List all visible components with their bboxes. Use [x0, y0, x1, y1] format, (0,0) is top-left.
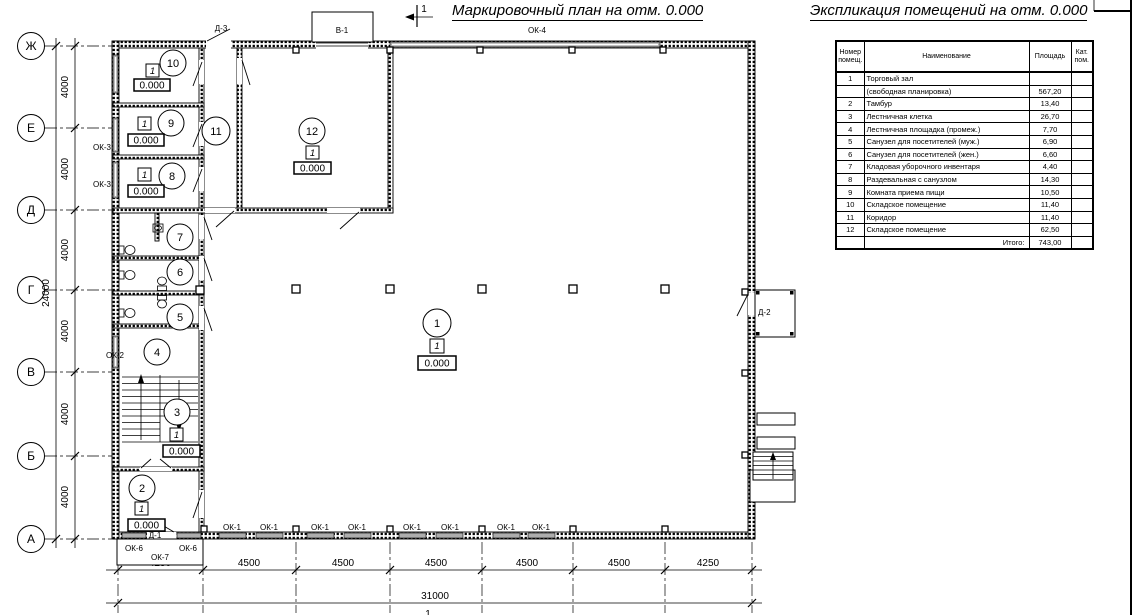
table-row: 10Складское помещение11,40: [836, 198, 1093, 211]
cell-area: 11,40: [1029, 211, 1071, 224]
svg-text:0.000: 0.000: [134, 521, 159, 532]
window-tag: ОК-1: [497, 523, 516, 532]
table-row: 8Раздевальная с санузлом14,30: [836, 173, 1093, 186]
table-row: 9Комната приема пищи10,50: [836, 186, 1093, 199]
cell-room-number: 12: [836, 224, 864, 237]
section-mark: 1: [405, 4, 433, 27]
cell-area: 14,30: [1029, 173, 1071, 186]
table-title: Экспликация помещений на отм. 0.000: [810, 2, 1087, 21]
cell-name: Складское помещение: [864, 198, 1029, 211]
room-marker-12: 12 1 0.000: [294, 118, 331, 175]
room-marker-2: 2 1 0.000: [128, 475, 165, 532]
cell-area: 11,40: [1029, 198, 1071, 211]
svg-text:10: 10: [167, 58, 179, 70]
plan-title: Маркировочный план на отм. 0.000: [452, 2, 703, 21]
cell-category: [1071, 161, 1093, 174]
header-name: Наименование: [864, 41, 1029, 72]
cell-category: [1071, 85, 1093, 98]
window-tag: ОК-1: [441, 523, 460, 532]
cell-name: Лестничная клетка: [864, 110, 1029, 123]
dim-value: 4000: [60, 157, 71, 180]
dim-total: 31000: [421, 591, 449, 602]
cell-room-number: 9: [836, 186, 864, 199]
axis-label: В: [27, 365, 35, 379]
svg-text:4: 4: [154, 347, 160, 359]
dim-value: 4000: [60, 238, 71, 261]
svg-text:1: 1: [150, 66, 155, 77]
cell-name: Комната приема пищи: [864, 186, 1029, 199]
svg-text:0.000: 0.000: [169, 447, 194, 458]
cell-category: [1071, 123, 1093, 136]
svg-text:0.000: 0.000: [300, 164, 325, 175]
dim-value: 4500: [332, 558, 355, 569]
cell-room-number: 6: [836, 148, 864, 161]
dim-value: 4000: [60, 75, 71, 98]
table-total-row: Итого:743,00: [836, 236, 1093, 249]
table-row: 3Лестничная клетка26,70: [836, 110, 1093, 123]
cell-category: [1071, 173, 1093, 186]
window-tag: ОК-2: [106, 351, 125, 360]
svg-text:0.000: 0.000: [133, 187, 158, 198]
cell-room-number: 1: [836, 72, 864, 85]
cell-room-number: 11: [836, 211, 864, 224]
cell-category: [1071, 148, 1093, 161]
table-row: 2Тамбур13,40: [836, 98, 1093, 111]
window-tag: ОК-1: [311, 523, 330, 532]
table-row: (свободная планировка)567,20: [836, 85, 1093, 98]
dim-value: 4000: [60, 485, 71, 508]
cell-name: Лестничная площадка (промеж.): [864, 123, 1029, 136]
window-tag: ОК-3: [93, 143, 112, 152]
dim-value: 4000: [60, 319, 71, 342]
cell-category: [1071, 135, 1093, 148]
dim-value: 4500: [238, 558, 261, 569]
cell-category: [1071, 236, 1093, 249]
cell-category: [1071, 110, 1093, 123]
window-tag: ОК-6: [179, 544, 198, 553]
table-row: 4Лестничная площадка (промеж.)7,70: [836, 123, 1093, 136]
cell-area: 7,70: [1029, 123, 1071, 136]
svg-text:1: 1: [142, 170, 147, 181]
window-tag: ОК-1: [403, 523, 422, 532]
cell-name: Санузел для посетителей (жен.): [864, 148, 1029, 161]
cell-room-number: [836, 236, 864, 249]
cell-area: 4,40: [1029, 161, 1071, 174]
svg-text:8: 8: [169, 171, 175, 183]
table-row: 7Кладовая уборочного инвентаря4,40: [836, 161, 1093, 174]
dim-value: 4000: [60, 402, 71, 425]
svg-text:1: 1: [434, 341, 439, 352]
cell-name: Складское помещение: [864, 224, 1029, 237]
cell-room-number: [836, 85, 864, 98]
cell-room-number: 4: [836, 123, 864, 136]
svg-text:7: 7: [177, 232, 183, 244]
room-marker-3: 3 1 0.000: [163, 399, 200, 458]
svg-text:1: 1: [139, 504, 144, 515]
room-marker-6: 6: [167, 259, 193, 285]
cell-category: [1071, 224, 1093, 237]
svg-text:6: 6: [177, 267, 183, 279]
room-marker-8: 8 1 0.000: [128, 163, 185, 198]
svg-text:1: 1: [310, 148, 315, 159]
window-tag: ОК-1: [348, 523, 367, 532]
window-tag: ОК-6: [125, 544, 144, 553]
section-number: 1: [421, 4, 427, 15]
left-dimensions: 4000 4000 4000 4000 4000 4000 24000: [41, 38, 79, 548]
cell-category: [1071, 98, 1093, 111]
cell-room-number: 3: [836, 110, 864, 123]
table-row: 11Коридор11,40: [836, 211, 1093, 224]
table-row: 5Санузел для посетителей (муж.)6,90: [836, 135, 1093, 148]
gate-tag: В-1: [336, 26, 349, 35]
sheet-frame: [1094, 0, 1131, 615]
cell-name: Раздевальная с санузлом: [864, 173, 1029, 186]
svg-text:3: 3: [174, 407, 180, 419]
svg-text:1: 1: [434, 318, 440, 330]
cell-name: Тамбур: [864, 98, 1029, 111]
axis-label: Е: [27, 121, 35, 135]
svg-text:0.000: 0.000: [133, 136, 158, 147]
axis-label: Г: [28, 283, 35, 297]
axis-label: Д: [27, 203, 35, 217]
svg-text:9: 9: [168, 118, 174, 130]
table-row: 1Торговый зал: [836, 72, 1093, 85]
svg-text:0.000: 0.000: [424, 359, 449, 370]
header-area: Площадь: [1029, 41, 1071, 72]
cell-area: 6,60: [1029, 148, 1071, 161]
cell-room-number: 8: [836, 173, 864, 186]
door-tag: Д-1: [149, 531, 162, 540]
window-tag: ОК-1: [223, 523, 242, 532]
exterior-walls: [112, 41, 755, 539]
cell-name: Кладовая уборочного инвентаря: [864, 161, 1029, 174]
bottom-dimensions: 4250 4500 4500 4500 4500 4500 4250 31000…: [106, 542, 762, 615]
svg-text:11: 11: [210, 126, 221, 138]
dim-total: 24000: [41, 279, 52, 307]
table-row: 6Санузел для посетителей (жен.)6,60: [836, 148, 1093, 161]
room-marker-1: 1 1 0.000: [418, 309, 456, 370]
exterior-elements: [117, 12, 795, 565]
window-tag: ОК-7: [151, 553, 170, 562]
cell-area: 10,50: [1029, 186, 1071, 199]
dim-value: 4500: [425, 558, 448, 569]
table-row: 12Складское помещение62,50: [836, 224, 1093, 237]
cell-area: 62,50: [1029, 224, 1071, 237]
cell-category: [1071, 211, 1093, 224]
cell-total-label: Итого:: [864, 236, 1029, 249]
dim-value: 4500: [516, 558, 539, 569]
cell-total-area: 743,00: [1029, 236, 1071, 249]
cell-room-number: 5: [836, 135, 864, 148]
room-marker-9: 9 1 0.000: [128, 110, 184, 147]
drawing-sheet: Ж Е Д Г В Б А 4000 4000 4000 4000 4000 4…: [0, 0, 1137, 615]
door-tag: Д-3: [215, 24, 228, 33]
cell-area: 13,40: [1029, 98, 1071, 111]
dim-value: 4250: [697, 558, 720, 569]
cell-area: 26,70: [1029, 110, 1071, 123]
room-marker-7: 7: [167, 224, 193, 250]
cell-name: (свободная планировка): [864, 85, 1029, 98]
door-tag: Д-2: [758, 308, 771, 317]
window-tag: ОК-1: [532, 523, 551, 532]
svg-text:5: 5: [177, 312, 183, 324]
header-room-number: Номер помещ.: [836, 41, 864, 72]
cell-room-number: 7: [836, 161, 864, 174]
cell-category: [1071, 72, 1093, 85]
table-header-row: Номер помещ. Наименование Площадь Кат. п…: [836, 41, 1093, 72]
axis-column-label: 1: [425, 609, 431, 615]
cell-name: Санузел для посетителей (муж.): [864, 135, 1029, 148]
dim-value: 4500: [608, 558, 631, 569]
axis-label: Б: [27, 449, 35, 463]
svg-text:1: 1: [142, 119, 147, 130]
axis-label: Ж: [25, 39, 36, 53]
room-marker-4: 4: [144, 339, 170, 365]
cell-area: 567,20: [1029, 85, 1071, 98]
window-tag: ОК-1: [260, 523, 279, 532]
cell-category: [1071, 186, 1093, 199]
svg-text:2: 2: [139, 483, 145, 495]
cell-area: 6,90: [1029, 135, 1071, 148]
cell-area: [1029, 72, 1071, 85]
window-tag: ОК-4: [528, 26, 547, 35]
explication-table: Номер помещ. Наименование Площадь Кат. п…: [835, 40, 1094, 250]
columns: [196, 47, 748, 532]
cell-category: [1071, 198, 1093, 211]
axis-label: А: [27, 532, 35, 546]
axis-grid: Ж Е Д Г В Б А: [18, 33, 113, 553]
doors: [140, 29, 755, 539]
cell-name: Торговый зал: [864, 72, 1029, 85]
svg-text:12: 12: [306, 126, 318, 138]
svg-text:1: 1: [174, 430, 179, 441]
cell-name: Коридор: [864, 211, 1029, 224]
cell-room-number: 2: [836, 98, 864, 111]
window-tag: ОК-3: [93, 180, 112, 189]
room-marker-10: 10 1 0.000: [134, 50, 186, 92]
room-marker-11: 11: [202, 117, 230, 145]
svg-text:0.000: 0.000: [139, 81, 164, 92]
interior-walls: [113, 48, 393, 532]
room-marker-5: 5: [167, 304, 193, 330]
cell-room-number: 10: [836, 198, 864, 211]
header-category: Кат. пом.: [1071, 41, 1093, 72]
